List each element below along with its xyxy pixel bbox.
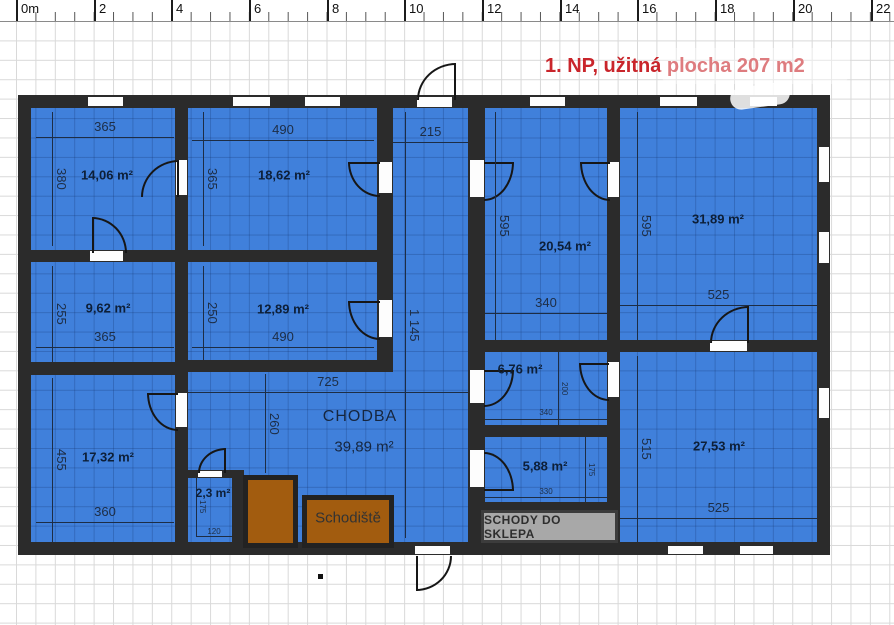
ruler-label: 20 bbox=[798, 1, 812, 16]
dim-line bbox=[196, 536, 232, 537]
ruler-label: 12 bbox=[487, 1, 501, 16]
ruler-label: 18 bbox=[720, 1, 734, 16]
ruler-label: 2 bbox=[99, 1, 106, 16]
door-opening bbox=[470, 160, 484, 197]
dim-line bbox=[52, 266, 53, 362]
ruler-tick bbox=[560, 0, 562, 21]
dim-label: 260 bbox=[267, 374, 282, 473]
ruler-label: 14 bbox=[565, 1, 579, 16]
ruler-tick bbox=[871, 0, 873, 21]
ruler-label: 4 bbox=[176, 1, 183, 16]
dim-label: 340 bbox=[485, 408, 607, 417]
ruler-minor-ticks bbox=[0, 12, 894, 21]
door-opening bbox=[608, 362, 619, 397]
window bbox=[819, 232, 829, 263]
ruler-label: 0m bbox=[21, 1, 39, 16]
horizontal-ruler: 0m 2 4 6 8 10 12 14 16 18 20 22 bbox=[0, 0, 894, 22]
ruler-label: 6 bbox=[254, 1, 261, 16]
dim-label: 725 bbox=[188, 374, 468, 389]
window bbox=[305, 97, 340, 106]
ruler-tick bbox=[327, 0, 329, 21]
floorplan-canvas: 0m 2 4 6 8 10 12 14 16 18 20 22 bbox=[0, 0, 894, 625]
door-opening bbox=[379, 162, 392, 193]
dim-line bbox=[203, 266, 204, 360]
wall bbox=[188, 360, 377, 372]
basement-stairs-box: SCHODY DO SKLEPA bbox=[481, 510, 618, 543]
window bbox=[740, 546, 773, 554]
dim-line bbox=[637, 112, 638, 340]
dim-label: 1 145 bbox=[407, 112, 422, 538]
door-swing bbox=[417, 63, 456, 100]
wall bbox=[31, 250, 377, 262]
ruler-label: 16 bbox=[642, 1, 656, 16]
window bbox=[819, 147, 829, 182]
window bbox=[819, 388, 829, 418]
ruler-tick bbox=[482, 0, 484, 21]
ruler-tick bbox=[171, 0, 173, 21]
dim-label: 215 bbox=[393, 124, 468, 139]
door-opening bbox=[470, 450, 484, 487]
dim-label: 255 bbox=[54, 266, 69, 362]
ruler-label: 8 bbox=[332, 1, 339, 16]
corridor-area-label: 39,89 m² bbox=[334, 439, 393, 456]
dim-label: 250 bbox=[205, 266, 220, 360]
ruler-tick bbox=[793, 0, 795, 21]
wall bbox=[485, 425, 607, 437]
ruler-tick bbox=[249, 0, 251, 21]
dim-label: 515 bbox=[639, 356, 654, 542]
dim-label: 455 bbox=[54, 378, 69, 542]
room-area-label: 17,32 m² bbox=[82, 450, 134, 465]
dim-line bbox=[485, 419, 607, 420]
window bbox=[88, 97, 123, 106]
room-area-label: 27,53 m² bbox=[693, 439, 745, 454]
dim-label: 200 bbox=[560, 352, 569, 425]
door-opening bbox=[415, 546, 450, 554]
ruler-tick bbox=[715, 0, 717, 21]
room-area-label: 31,89 m² bbox=[692, 212, 744, 227]
basement-stairs-label: SCHODY DO SKLEPA bbox=[484, 513, 615, 541]
ruler-tick bbox=[94, 0, 96, 21]
ruler-tick bbox=[637, 0, 639, 21]
window bbox=[668, 546, 703, 554]
ruler-label: 10 bbox=[409, 1, 423, 16]
dim-label: 380 bbox=[54, 112, 69, 246]
door-opening bbox=[379, 300, 392, 337]
room-area-label: 5,88 m² bbox=[523, 459, 568, 474]
room-area-label: 6,76 m² bbox=[498, 362, 543, 377]
door-opening bbox=[470, 370, 484, 403]
room-area-label: 9,62 m² bbox=[86, 301, 131, 316]
dim-label: 595 bbox=[639, 112, 654, 340]
room-area-label: 12,89 m² bbox=[257, 302, 309, 317]
scale-marker-dot bbox=[318, 574, 323, 579]
room-area-label: 18,62 m² bbox=[258, 168, 310, 183]
stairs-box-small bbox=[243, 475, 298, 548]
room-area-label: 14,06 m² bbox=[81, 168, 133, 183]
dim-label: 175 bbox=[587, 437, 596, 502]
ruler-label: 22 bbox=[876, 1, 890, 16]
dim-label: 365 bbox=[205, 112, 220, 246]
room-area-label: 2,3 m² bbox=[196, 486, 231, 500]
window bbox=[530, 97, 565, 106]
wall bbox=[485, 340, 817, 352]
ruler-tick bbox=[404, 0, 406, 21]
watermark-artifact bbox=[660, 48, 850, 84]
dim-line bbox=[405, 112, 406, 538]
dim-label: 595 bbox=[497, 112, 512, 340]
window bbox=[660, 97, 697, 106]
dim-line bbox=[188, 392, 468, 393]
window bbox=[233, 97, 270, 106]
door-swing bbox=[416, 556, 452, 591]
room-area-label: 20,54 m² bbox=[539, 239, 591, 254]
wall bbox=[31, 362, 175, 375]
corridor-name-label: CHODBA bbox=[323, 408, 397, 426]
stairs-label: Schodiště bbox=[315, 510, 381, 527]
ruler-tick bbox=[16, 0, 18, 21]
